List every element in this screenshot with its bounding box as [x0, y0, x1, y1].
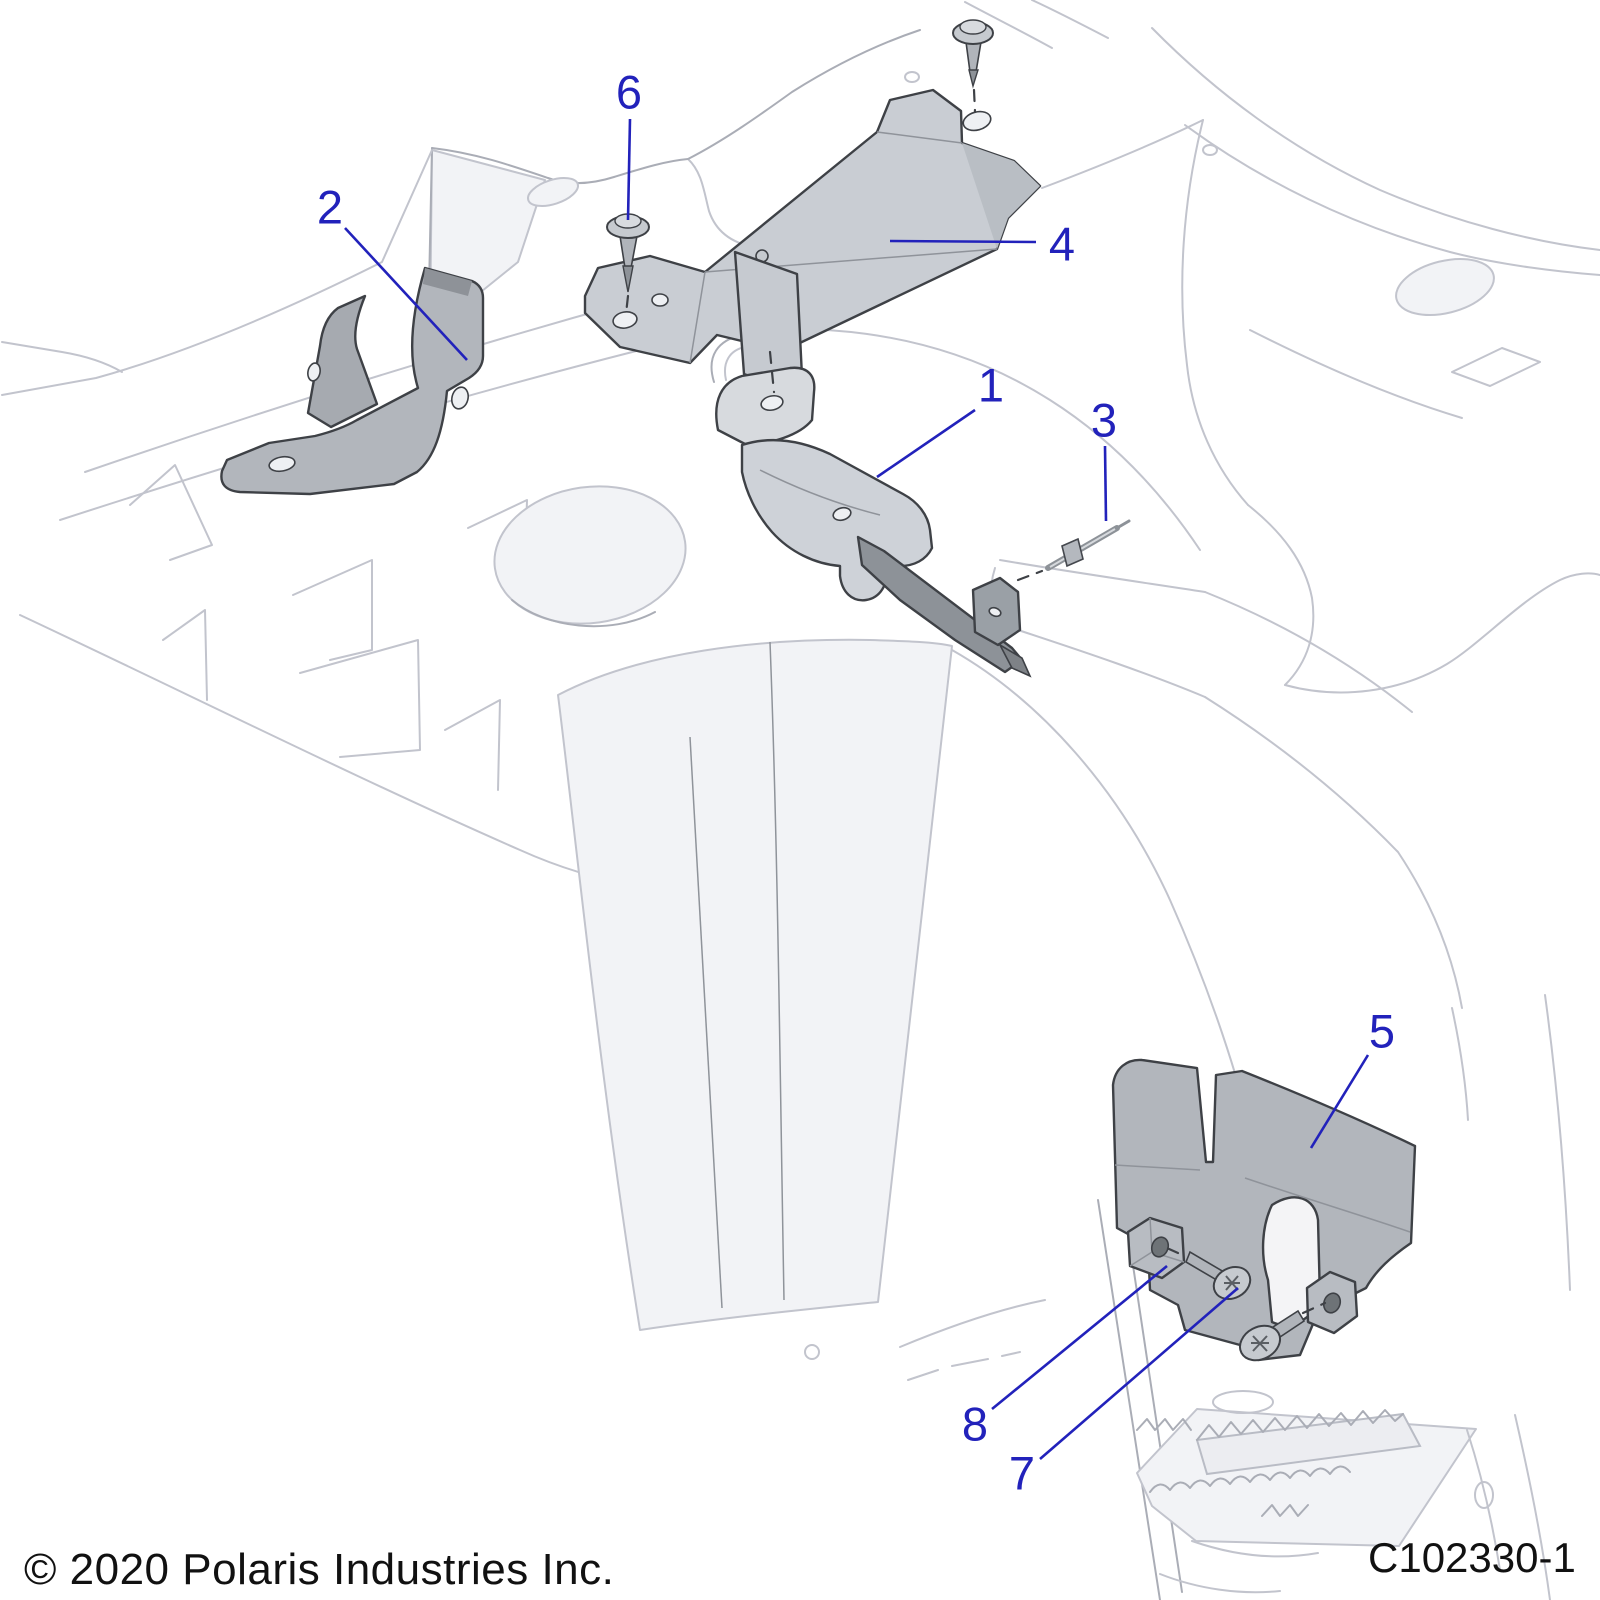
panel-oval-cutout [1390, 250, 1500, 325]
parts-diagram-page: 12345678 © 2020 Polaris Industries Inc. … [0, 0, 1600, 1600]
exploded-parts-diagram-canvas: 12345678 [0, 0, 1600, 1600]
callout-leader-8 [992, 1266, 1167, 1409]
callout-leader-4 [890, 241, 1036, 242]
bracket-part-5 [1113, 1060, 1415, 1360]
callout-number-2: 2 [317, 181, 343, 234]
callout-number-4: 4 [1049, 218, 1075, 271]
body-round-opening [485, 474, 694, 635]
bracket-4-screw-hole [961, 109, 993, 134]
bracket-4-small-hole [652, 294, 668, 306]
bracket-5-left-clip [1128, 1218, 1184, 1278]
callout-number-3: 3 [1091, 394, 1117, 447]
callout-leader-3 [1105, 446, 1106, 521]
bracket-part-1 [716, 252, 1030, 676]
callout-number-1: 1 [978, 359, 1004, 412]
callout-leader-1 [877, 410, 975, 477]
callout-number-7: 7 [1009, 1447, 1035, 1500]
diagram-code: C102330-1 [1368, 1534, 1576, 1582]
callout-leader-6 [628, 119, 630, 220]
center-column [558, 640, 952, 1330]
bracket-part-2 [221, 268, 483, 494]
push-rivet-top-right [953, 20, 993, 112]
callout-number-8: 8 [962, 1398, 988, 1451]
fender-vent-lines [130, 465, 527, 790]
callout-number-5: 5 [1369, 1005, 1395, 1058]
bracket-2-wall-hole [450, 385, 471, 410]
callout-number-6: 6 [616, 66, 642, 119]
copyright-notice: © 2020 Polaris Industries Inc. [24, 1545, 614, 1595]
